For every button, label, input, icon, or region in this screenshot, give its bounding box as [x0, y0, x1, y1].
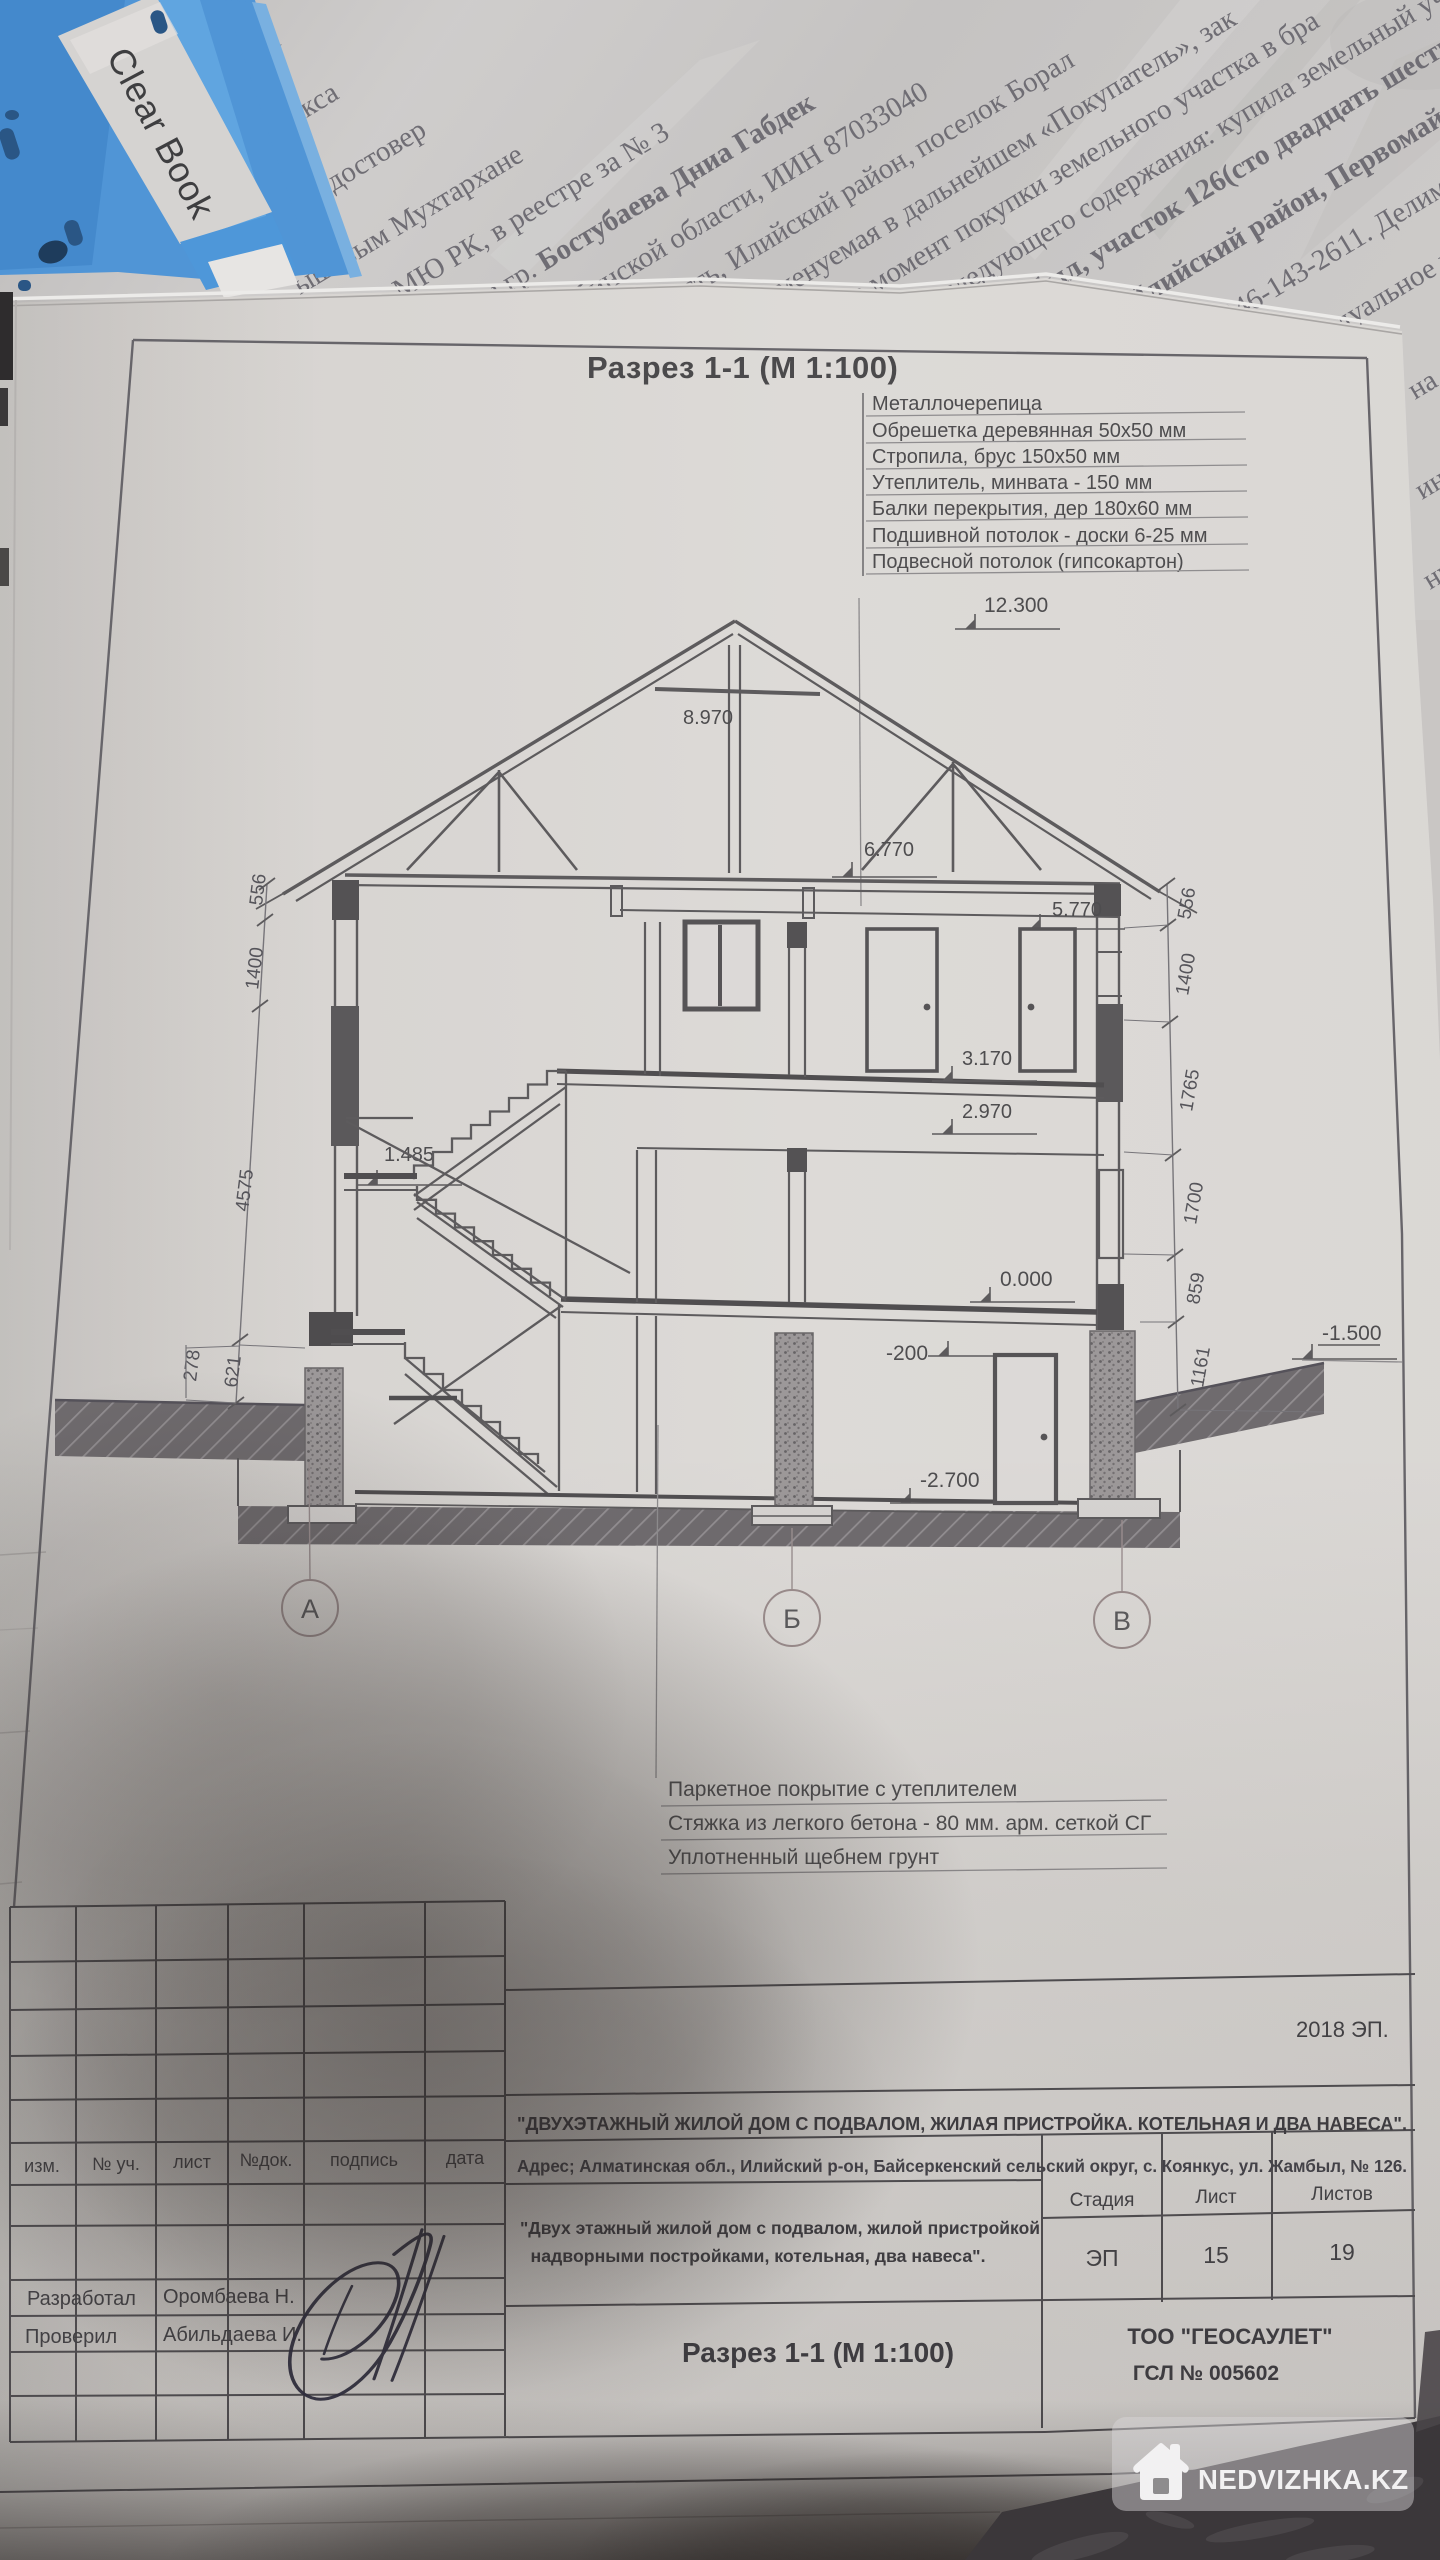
svg-text:-200: -200: [886, 1342, 928, 1365]
svg-text:Стропила, брус 150х50 мм: Стропила, брус 150х50 мм: [872, 446, 1120, 468]
svg-text:556: 556: [246, 873, 271, 907]
svg-text:0.000: 0.000: [1000, 1268, 1053, 1291]
svg-text:Подшивной потолок - доски 6-25: Подшивной потолок - доски 6-25 мм: [872, 525, 1208, 547]
svg-text:5.770: 5.770: [1052, 899, 1102, 921]
svg-text:8.970: 8.970: [683, 707, 733, 729]
svg-text:6.770: 6.770: [864, 839, 914, 861]
svg-text:Утеплитель, минвата - 150 мм: Утеплитель, минвата - 150 мм: [872, 472, 1152, 494]
svg-text:2.970: 2.970: [962, 1101, 1012, 1123]
svg-text:12.300: 12.300: [984, 594, 1048, 617]
svg-text:Обрешетка деревянная 50х50 мм: Обрешетка деревянная 50х50 мм: [872, 420, 1186, 442]
svg-text:-1.500: -1.500: [1322, 1322, 1382, 1345]
svg-text:Подвесной потолок (гипсокартон: Подвесной потолок (гипсокартон): [872, 551, 1184, 573]
svg-text:NEDVIZHKA.KZ: NEDVIZHKA.KZ: [1198, 2464, 1409, 2495]
svg-text:3.170: 3.170: [962, 1048, 1012, 1070]
svg-text:Балки перекрытия, дер 180х60 м: Балки перекрытия, дер 180х60 мм: [872, 498, 1192, 520]
svg-text:Металлочерепица: Металлочерепица: [872, 393, 1043, 415]
svg-text:Разрез 1-1 (М 1:100): Разрез 1-1 (М 1:100): [587, 350, 898, 385]
